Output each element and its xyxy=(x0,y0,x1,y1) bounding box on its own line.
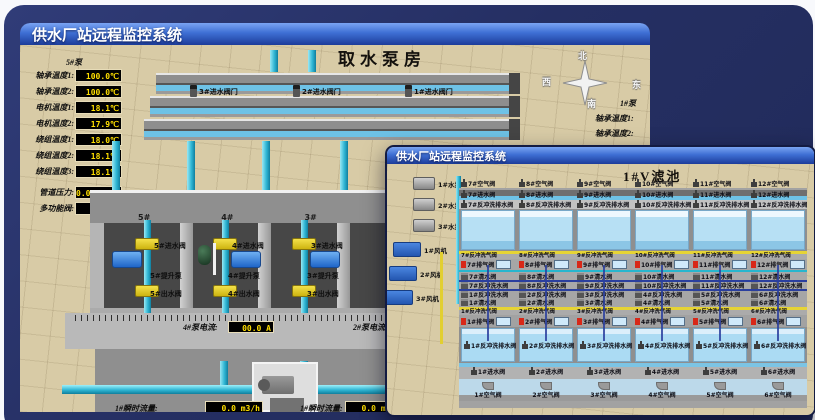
equipment-label: 8#清水阀 xyxy=(527,272,554,281)
surge-tank-icon[interactable] xyxy=(198,245,211,265)
readout-label: 轴承温度2: xyxy=(28,86,74,97)
pump-motor-icon xyxy=(413,198,435,211)
equipment-label: 9#进水阀 xyxy=(584,190,611,199)
clean-water-valve[interactable]: 1#清水阀 xyxy=(459,298,517,307)
pump-group-tag: 5#泵 xyxy=(66,57,82,68)
clean-water-valve[interactable]: 2#清水阀 xyxy=(517,298,575,307)
blower-fan[interactable]: 1#风机 xyxy=(393,242,447,257)
equipment-label: 3#反冲洗排水阀 xyxy=(587,341,632,350)
machine-icon xyxy=(693,299,700,306)
machine-icon xyxy=(519,299,526,306)
filter-pool-scene: 1#V滤池 1#水泵2#水泵3#水泵 1#风机2#风机3#风机 7#空气阀8#空… xyxy=(387,164,814,415)
backwash-drain-valve[interactable]: 12#反冲洗排水阀 xyxy=(749,200,807,209)
flow-meter-icon xyxy=(262,376,294,394)
equipment-label: 11#清水阀 xyxy=(701,272,732,281)
equipment-label: 2#空气阀 xyxy=(532,390,559,399)
valve-sm-icon xyxy=(471,370,477,375)
elbow-icon xyxy=(482,382,494,390)
channel-valve-1[interactable]: 1#进水阀门 xyxy=(405,85,453,97)
equipment-label: 3#排气阀 xyxy=(583,317,610,326)
exhaust-valve[interactable]: 5#排气阀 xyxy=(691,315,749,327)
backwash-drain-valve[interactable]: 5#反冲洗排水阀 xyxy=(693,328,747,362)
readout-row: 电机温度2:17.9℃ xyxy=(28,117,122,130)
equipment-label: 4#反冲洗气阀 xyxy=(635,307,671,315)
valve-sm-icon xyxy=(751,182,757,187)
compass-west-label: 西 xyxy=(542,75,551,88)
equipment-label: 7#反冲洗气阀 xyxy=(461,251,497,259)
white-pipe xyxy=(213,243,216,275)
readout-row: 绕组温度1:18.0℃ xyxy=(28,133,122,146)
equipment-label: 6#空气阀 xyxy=(764,390,791,399)
backwash-air-row-bottom: 1#反冲洗气阀2#反冲洗气阀3#反冲洗气阀4#反冲洗气阀5#反冲洗气阀6#反冲洗… xyxy=(459,307,807,315)
valve-label: 3#出水阀 xyxy=(307,289,339,299)
clean-water-valve[interactable]: 10#清水阀 xyxy=(633,272,691,280)
clean-water-valve[interactable]: 6#清水阀 xyxy=(749,298,807,307)
filter-pools-top xyxy=(459,209,807,251)
pump-assembly-3[interactable]: 3#进水阀 3#提升泵 3#出水阀 xyxy=(250,220,360,315)
blower-fan-list: 1#风机2#风机3#风机 xyxy=(393,242,447,305)
current-readout-value: 00.0 A xyxy=(228,321,274,333)
backwash-air-valve[interactable]: 8#反冲洗气阀 xyxy=(517,251,575,259)
compass-south-label: 南 xyxy=(587,97,596,110)
valve-red-icon xyxy=(461,318,466,325)
valve-sm-icon xyxy=(635,203,641,208)
backwash-drain-valve[interactable]: 11#反冲洗排水阀 xyxy=(691,200,749,209)
filter-pool-cell xyxy=(461,210,515,250)
pump-motor-icon xyxy=(413,219,435,232)
backwash-air-row-top: 7#反冲洗气阀8#反冲洗气阀9#反冲洗气阀10#反冲洗气阀11#反冲洗气阀12#… xyxy=(459,251,807,259)
pump-motor-icon xyxy=(413,177,435,190)
valve-sm-icon xyxy=(645,370,651,375)
machine-icon xyxy=(577,299,584,306)
readout-label: 绕组温度2: xyxy=(28,150,74,161)
equipment-label: 9#空气阀 xyxy=(584,179,611,188)
equipment-label: 2#清水阀 xyxy=(527,298,554,307)
clean-water-valve[interactable]: 8#清水阀 xyxy=(517,272,575,280)
backwash-air-valve[interactable]: 2#反冲洗气阀 xyxy=(517,307,575,315)
equipment-label: 8#反冲洗排水阀 xyxy=(526,200,571,209)
equipment-label: 4#反冲洗排水阀 xyxy=(645,341,690,350)
valve-sm-icon xyxy=(522,344,528,349)
readout-label: 电机温度1: xyxy=(28,102,74,113)
clean-water-valve[interactable]: 5#清水阀 xyxy=(691,298,749,307)
equipment-label: 6#进水阀 xyxy=(768,367,795,376)
valve-label: 3#进水阀门 xyxy=(199,87,238,97)
equipment-label: 4#排气阀 xyxy=(641,317,668,326)
backwash-drain-valve[interactable]: 6#反冲洗排水阀 xyxy=(751,328,805,362)
backwash-water-valve[interactable]: 2#反冲洗水阀 xyxy=(517,291,575,298)
air-valve[interactable]: 1#空气阀 xyxy=(459,379,517,401)
equipment-label: 7#反冲洗排水阀 xyxy=(468,200,513,209)
inlet-valve[interactable]: 5#进水阀 xyxy=(691,363,749,379)
machine-icon xyxy=(635,282,642,289)
exhaust-valve[interactable]: 10#排气阀 xyxy=(633,259,691,270)
equipment-label: 5#反冲洗排水阀 xyxy=(703,341,748,350)
equipment-label: 12#反冲洗气阀 xyxy=(751,251,791,259)
equipment-label: 1#排气阀 xyxy=(467,317,494,326)
exhaust-valve[interactable]: 2#排气阀 xyxy=(517,315,575,327)
backwash-water-valve[interactable]: 9#反冲洗水阀 xyxy=(575,282,633,289)
equipment-label: 3#清水阀 xyxy=(585,298,612,307)
equipment-label: 1#进水阀 xyxy=(478,367,505,376)
equipment-label: 11#反冲洗气阀 xyxy=(693,251,733,259)
back-window-title: 供水厂站远程监控系统 xyxy=(32,24,182,45)
equipment-label: 1#反冲洗排水阀 xyxy=(471,341,516,350)
equipment-label: 5#清水阀 xyxy=(701,298,728,307)
backwash-air-valve[interactable]: 3#反冲洗气阀 xyxy=(575,307,633,315)
backwash-water-row-top: 7#反冲洗水阀8#反冲洗水阀9#反冲洗水阀10#反冲洗水阀11#反冲洗水阀12#… xyxy=(459,280,807,289)
readout-row: 轴承温度2:100.0℃ xyxy=(28,85,122,98)
machine-icon xyxy=(751,273,758,280)
right-pump-group-tag: 1#泵 xyxy=(620,98,636,109)
equipment-label: 8#反冲洗水阀 xyxy=(527,281,566,290)
machine-icon xyxy=(577,282,584,289)
equipment-label: 12#空气阀 xyxy=(758,179,789,188)
current-readout-label: 4#泵电流: xyxy=(183,322,218,333)
inlet-valve[interactable]: 2#进水阀 xyxy=(517,363,575,379)
readout-label: 绕组温度1: xyxy=(28,134,74,145)
clean-valve-row-top: 7#清水阀8#清水阀9#清水阀10#清水阀11#清水阀12#清水阀 xyxy=(459,270,807,280)
backwash-water-valve[interactable]: 5#反冲洗水阀 xyxy=(691,291,749,298)
water-pump[interactable]: 3#水泵 xyxy=(413,219,461,232)
equipment-label: 6#清水阀 xyxy=(759,298,786,307)
exhaust-valve-row-bottom: 1#排气阀2#排气阀3#排气阀4#排气阀5#排气阀6#排气阀 xyxy=(459,315,807,327)
compass-icon xyxy=(560,57,610,109)
valve-red-icon xyxy=(751,261,756,268)
equipment-label: 5#反冲洗气阀 xyxy=(693,307,729,315)
machine-icon xyxy=(577,273,584,280)
air-valve[interactable]: 5#空气阀 xyxy=(691,379,749,401)
equipment-label: 10#进水阀 xyxy=(642,190,673,199)
air-valve[interactable]: 6#空气阀 xyxy=(749,379,807,401)
equipment-label: 1#反冲洗气阀 xyxy=(461,307,497,315)
back-window-titlebar[interactable]: 供水厂站远程监控系统 xyxy=(20,23,650,45)
right-readout-label: 轴承温度2: xyxy=(595,128,650,139)
equipment-label: 1#清水阀 xyxy=(469,298,496,307)
equipment-label: 4#进水阀 xyxy=(652,367,679,376)
backwash-drain-valve[interactable]: 2#反冲洗排水阀 xyxy=(519,328,573,362)
equipment-label: 3#风机 xyxy=(416,293,439,303)
exhaust-valve-row-top: 7#排气阀8#排气阀9#排气阀10#排气阀11#排气阀12#排气阀 xyxy=(459,259,807,270)
valve-sm-icon xyxy=(635,182,641,187)
water-pump[interactable]: 2#水泵 xyxy=(413,198,461,211)
air-valve-row-top: 7#空气阀8#空气阀9#空气阀10#空气阀11#空气阀12#空气阀 xyxy=(459,178,807,188)
valve-sm-icon xyxy=(761,370,767,375)
backwash-drain-valve[interactable]: 1#反冲洗排水阀 xyxy=(461,328,515,362)
backwash-drain-valve[interactable]: 9#反冲洗排水阀 xyxy=(575,200,633,209)
air-valve[interactable]: 2#空气阀 xyxy=(517,379,575,401)
intake-pipe xyxy=(308,50,316,72)
equipment-label: 6#反冲洗排水阀 xyxy=(761,341,806,350)
equipment-label: 1#空气阀 xyxy=(474,390,501,399)
readout-label: 轴承温度1: xyxy=(28,70,74,81)
backwash-air-valve[interactable]: 4#反冲洗气阀 xyxy=(633,307,691,315)
exhaust-valve[interactable]: 4#排气阀 xyxy=(633,315,691,327)
machine-icon xyxy=(461,273,468,280)
machine-icon xyxy=(635,273,642,280)
water-pump-list: 1#水泵2#水泵3#水泵 xyxy=(413,177,461,232)
backwash-water-valve[interactable]: 3#反冲洗水阀 xyxy=(575,291,633,298)
exhaust-valve[interactable]: 6#排气阀 xyxy=(749,315,807,327)
water-pump[interactable]: 1#水泵 xyxy=(413,177,461,190)
valve-red-icon xyxy=(635,318,640,325)
valve-sm-icon xyxy=(587,370,593,375)
valve-red-icon xyxy=(577,318,582,325)
machine-icon xyxy=(461,282,468,289)
equipment-label: 11#反冲洗水阀 xyxy=(701,281,744,290)
flow-readout-value: 0.0 m3/h xyxy=(205,401,263,412)
compass-east-label: 东 xyxy=(632,78,641,91)
inlet-valve[interactable]: 9#进水阀 xyxy=(575,188,633,200)
equipment-label: 1#风机 xyxy=(424,245,447,255)
equipment-label: 4#空气阀 xyxy=(648,390,675,399)
machine-icon xyxy=(577,291,584,298)
backwash-air-valve[interactable]: 12#反冲洗气阀 xyxy=(749,251,807,259)
backwash-air-valve[interactable]: 1#反冲洗气阀 xyxy=(459,307,517,315)
equipment-label: 12#反冲洗排水阀 xyxy=(758,200,807,209)
fan-box-icon xyxy=(387,290,413,305)
valve-sm-icon xyxy=(693,203,699,208)
equipment-label: 2#反冲洗气阀 xyxy=(519,307,555,315)
desktop: 供水厂站远程监控系统 取水泵房 5#泵 轴承温度1:100.0℃轴承温度2:10… xyxy=(0,0,815,420)
equipment-label: 5#空气阀 xyxy=(706,390,733,399)
intake-pipe xyxy=(270,50,278,72)
clean-water-valve[interactable]: 11#清水阀 xyxy=(691,272,749,280)
valve-red-icon xyxy=(461,261,466,268)
air-valve-row-bottom: 1#空气阀2#空气阀3#空气阀4#空气阀5#空气阀6#空气阀 xyxy=(459,379,807,401)
equipment-label: 9#排气阀 xyxy=(583,260,610,269)
backwash-water-valve[interactable]: 12#反冲洗水阀 xyxy=(749,282,807,289)
clean-water-valve[interactable]: 7#清水阀 xyxy=(459,272,517,280)
equipment-label: 10#清水阀 xyxy=(643,272,674,281)
equipment-label: 9#反冲洗水阀 xyxy=(585,281,624,290)
readout-value: 100.0℃ xyxy=(75,85,122,98)
scene-heading: 取水泵房 xyxy=(316,45,448,70)
compass-north-label: 北 xyxy=(578,49,587,62)
gate-valve-icon xyxy=(405,85,412,97)
lift-pump-icon[interactable] xyxy=(310,251,340,268)
clean-water-valve[interactable]: 3#清水阀 xyxy=(575,298,633,307)
equipment-label: 12#排气阀 xyxy=(757,260,788,269)
valve-red-icon xyxy=(751,318,756,325)
filter-pool-cell xyxy=(751,210,805,250)
valve-sm-icon xyxy=(577,182,583,187)
equipment-label: 10#反冲洗水阀 xyxy=(643,281,686,290)
equipment-label: 3#反冲洗气阀 xyxy=(577,307,613,315)
readout-row: 绕组温度2:18.1℃ xyxy=(28,149,122,162)
equipment-label: 2#排气阀 xyxy=(525,317,552,326)
machine-icon xyxy=(693,282,700,289)
air-valve[interactable]: 12#空气阀 xyxy=(749,178,807,188)
air-valve[interactable]: 10#空气阀 xyxy=(633,178,691,188)
valve-sm-icon xyxy=(577,193,583,198)
equipment-label: 10#空气阀 xyxy=(642,179,673,188)
equipment-label: 8#空气阀 xyxy=(526,179,553,188)
valve-sm-icon xyxy=(461,182,467,187)
readout-value: 18.1℃ xyxy=(75,101,122,114)
backwash-drain-valve[interactable]: 4#反冲洗排水阀 xyxy=(635,328,689,362)
readout-row: 轴承温度1:100.0℃ xyxy=(28,69,122,82)
backwash-air-valve[interactable]: 9#反冲洗气阀 xyxy=(575,251,633,259)
clean-water-valve[interactable]: 9#清水阀 xyxy=(575,272,633,280)
equipment-label: 2#进水阀 xyxy=(536,367,563,376)
exhaust-valve[interactable]: 12#排气阀 xyxy=(749,259,807,270)
equipment-label: 11#排气阀 xyxy=(699,260,730,269)
exhaust-valve[interactable]: 9#排气阀 xyxy=(575,259,633,270)
backwash-air-valve[interactable]: 5#反冲洗气阀 xyxy=(691,307,749,315)
grid-base xyxy=(459,401,807,408)
inlet-valve[interactable]: 7#进水阀 xyxy=(459,188,517,200)
backwash-water-valve[interactable]: 8#反冲洗水阀 xyxy=(517,282,575,289)
readout-value: 17.9℃ xyxy=(75,117,122,130)
equipment-label: 11#反冲洗排水阀 xyxy=(700,200,749,209)
inlet-valve-row-bottom: 1#进水阀2#进水阀3#进水阀4#进水阀5#进水阀6#进水阀 xyxy=(459,363,807,379)
machine-icon xyxy=(519,291,526,298)
backwash-drain-row-top: 7#反冲洗排水阀8#反冲洗排水阀9#反冲洗排水阀10#反冲洗排水阀11#反冲洗排… xyxy=(459,200,807,209)
valve-red-icon xyxy=(577,261,582,268)
front-window-titlebar[interactable]: 供水厂站远程监控系统 xyxy=(387,147,814,164)
valve-sm-icon xyxy=(696,344,702,349)
readout-label: 管道压力: xyxy=(28,187,74,198)
equipment-label: 9#反冲洗排水阀 xyxy=(584,200,629,209)
equipment-label: 2#反冲洗排水阀 xyxy=(529,341,574,350)
clean-valve-row-bottom: 1#清水阀2#清水阀3#清水阀4#清水阀5#清水阀6#清水阀 xyxy=(459,298,807,307)
pump-pipe xyxy=(144,220,151,315)
backwash-water-valve[interactable]: 6#反冲洗水阀 xyxy=(749,291,807,298)
exhaust-valve[interactable]: 7#排气阀 xyxy=(459,259,517,270)
equipment-label: 6#反冲洗气阀 xyxy=(751,307,787,315)
backwash-air-valve[interactable]: 10#反冲洗气阀 xyxy=(633,251,691,259)
equipment-label: 5#进水阀 xyxy=(710,367,737,376)
machine-icon xyxy=(751,299,758,306)
backwash-drain-valve[interactable]: 10#反冲洗排水阀 xyxy=(633,200,691,209)
backwash-water-row-bottom: 1#反冲洗水阀2#反冲洗水阀3#反冲洗水阀4#反冲洗水阀5#反冲洗水阀6#反冲洗… xyxy=(459,289,807,298)
blower-fan[interactable]: 2#风机 xyxy=(389,266,447,281)
backwash-air-valve[interactable]: 11#反冲洗气阀 xyxy=(691,251,749,259)
backwash-air-valve[interactable]: 6#反冲洗气阀 xyxy=(749,307,807,315)
inlet-valve-row-top: 7#进水阀8#进水阀9#进水阀10#进水阀11#进水阀12#进水阀 xyxy=(459,188,807,200)
elbow-icon xyxy=(772,382,784,390)
inlet-valve[interactable]: 4#进水阀 xyxy=(633,363,691,379)
inlet-valve[interactable]: 12#进水阀 xyxy=(749,188,807,200)
lift-pump-icon[interactable] xyxy=(112,251,142,268)
backwash-water-valve[interactable]: 10#反冲洗水阀 xyxy=(633,282,691,289)
valve-red-icon xyxy=(693,261,698,268)
equipment-label: 10#排气阀 xyxy=(641,260,672,269)
inlet-valve[interactable]: 1#进水阀 xyxy=(459,363,517,379)
equipment-label: 5#排气阀 xyxy=(699,317,726,326)
backwash-water-valve[interactable]: 4#反冲洗水阀 xyxy=(633,291,691,298)
inlet-valve[interactable]: 8#进水阀 xyxy=(517,188,575,200)
inlet-valve[interactable]: 11#进水阀 xyxy=(691,188,749,200)
filter-pools-bottom: 1#反冲洗排水阀2#反冲洗排水阀3#反冲洗排水阀4#反冲洗排水阀5#反冲洗排水阀… xyxy=(459,327,807,363)
valve-sm-icon xyxy=(693,193,699,198)
exhaust-valve[interactable]: 3#排气阀 xyxy=(575,315,633,327)
outlet-pipe xyxy=(220,361,228,387)
valve-red-icon xyxy=(693,318,698,325)
exhaust-valve[interactable]: 8#排气阀 xyxy=(517,259,575,270)
channel-valve-2[interactable]: 2#进水阀门 xyxy=(293,85,341,97)
readout-label: 电机温度2: xyxy=(28,118,74,129)
air-pipe xyxy=(440,252,443,344)
intake-channel xyxy=(144,119,520,140)
valve-sm-icon xyxy=(529,370,535,375)
gate-valve-icon xyxy=(293,85,300,97)
elbow-icon xyxy=(656,382,668,390)
exhaust-valve[interactable]: 11#排气阀 xyxy=(691,259,749,270)
blower-fan[interactable]: 3#风机 xyxy=(387,290,447,305)
backwash-water-valve[interactable]: 11#反冲洗水阀 xyxy=(691,282,749,289)
equipment-label: 7#排气阀 xyxy=(467,260,494,269)
valve-label: 2#进水阀门 xyxy=(302,87,341,97)
equipment-label: 10#反冲洗排水阀 xyxy=(642,200,691,209)
air-valve[interactable]: 7#空气阀 xyxy=(459,178,517,188)
readout-label: 多功能阀: xyxy=(28,203,74,214)
backwash-drain-valve[interactable]: 3#反冲洗排水阀 xyxy=(577,328,631,362)
backwash-air-valve[interactable]: 7#反冲洗气阀 xyxy=(459,251,517,259)
valve-sm-icon xyxy=(751,203,757,208)
flow-readout-label: 1#瞬时流量: xyxy=(115,403,158,412)
inlet-valve[interactable]: 10#进水阀 xyxy=(633,188,691,200)
air-valve[interactable]: 11#空气阀 xyxy=(691,178,749,188)
air-valve[interactable]: 3#空气阀 xyxy=(575,379,633,401)
inlet-valve[interactable]: 6#进水阀 xyxy=(749,363,807,379)
machine-icon xyxy=(635,299,642,306)
backwash-drain-valve[interactable]: 8#反冲洗排水阀 xyxy=(517,200,575,209)
air-valve[interactable]: 9#空气阀 xyxy=(575,178,633,188)
equipment-label: 7#反冲洗水阀 xyxy=(469,281,508,290)
filter-pool-window: 供水厂站远程监控系统 1#V滤池 1#水泵2#水泵3#水泵 1#风机2#风机3#… xyxy=(385,145,815,417)
filter-grid: 7#空气阀8#空气阀9#空气阀10#空气阀11#空气阀12#空气阀 7#进水阀8… xyxy=(459,178,807,408)
exhaust-valve[interactable]: 1#排气阀 xyxy=(459,315,517,327)
machine-icon xyxy=(461,299,468,306)
equipment-label: 12#进水阀 xyxy=(758,190,789,199)
backwash-water-valve[interactable]: 1#反冲洗水阀 xyxy=(459,291,517,298)
backwash-drain-valve[interactable]: 7#反冲洗排水阀 xyxy=(459,200,517,209)
channel-valve-3[interactable]: 3#进水阀门 xyxy=(190,85,238,97)
valve-label: 3#进水阀 xyxy=(311,241,343,251)
valve-sm-icon xyxy=(580,344,586,349)
inlet-valve[interactable]: 3#进水阀 xyxy=(575,363,633,379)
machine-icon xyxy=(461,291,468,298)
machine-icon xyxy=(519,282,526,289)
filter-pool-cell xyxy=(693,210,747,250)
valve-sm-icon xyxy=(693,182,699,187)
valve-sm-icon xyxy=(519,182,525,187)
machine-icon xyxy=(751,291,758,298)
pump-pipe xyxy=(222,220,229,315)
clean-water-valve[interactable]: 12#清水阀 xyxy=(749,272,807,280)
clean-water-valve[interactable]: 4#清水阀 xyxy=(633,298,691,307)
readout-row: 电机温度1:18.1℃ xyxy=(28,101,122,114)
machine-icon xyxy=(751,282,758,289)
valve-sm-icon xyxy=(635,193,641,198)
backwash-water-valve[interactable]: 7#反冲洗水阀 xyxy=(459,282,517,289)
intake-channel xyxy=(150,96,520,117)
equipment-label: 9#清水阀 xyxy=(585,272,612,281)
current-readout-label-2: 2#泵电流 xyxy=(353,322,385,333)
equipment-label: 7#空气阀 xyxy=(468,179,495,188)
front-window-title: 供水厂站远程监控系统 xyxy=(396,148,506,164)
valve-sm-icon xyxy=(577,203,583,208)
equipment-label: 8#反冲洗气阀 xyxy=(519,251,555,259)
valve-sm-icon xyxy=(638,344,644,349)
filter-pool-cell xyxy=(519,210,573,250)
air-valve[interactable]: 8#空气阀 xyxy=(517,178,575,188)
equipment-label: 3#进水阀 xyxy=(594,367,621,376)
air-valve[interactable]: 4#空气阀 xyxy=(633,379,691,401)
machine-icon xyxy=(635,291,642,298)
